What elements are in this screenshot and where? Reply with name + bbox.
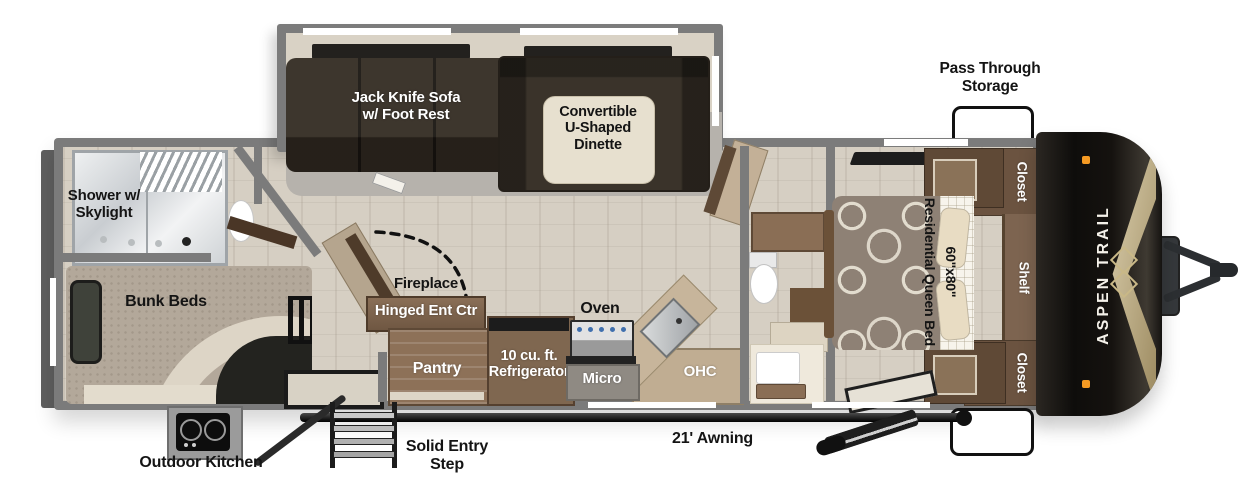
nightstand-bottom-glass [933,355,977,395]
awning-end-cap [956,410,972,426]
shelf-label: Shelf [1016,243,1031,313]
shower-label-line2: Skylight [44,205,164,222]
oven-base [566,356,636,364]
bunk-floor-strip [84,385,224,404]
entry-step-tread [333,451,395,458]
entry-step-line2: Step [387,456,507,474]
ent-center-label: Hinged Ent Ctr [366,303,486,320]
refrigerator-top [489,318,569,331]
dinette-label-line2: U-Shaped [543,120,653,136]
bath-overhead-cabinet [751,212,825,252]
window-pane-sofa [312,44,470,59]
bath-shelf-dark [790,288,826,326]
pantry-floor-strip [390,392,484,400]
refrigerator-label-line1: 10 cu. ft. [485,348,573,364]
pass-through-line2: Storage [915,78,1065,96]
vanity-sink [756,352,800,384]
bed-size-label: 60"x80" [942,222,958,322]
slide-side-window [712,56,719,126]
bed-label: Residential Queen Bed [921,197,937,347]
closet-bottom-label: Closet [1014,338,1029,408]
burner-dot [610,327,615,332]
oven-label: Oven [560,300,640,318]
bottom-wall-strip-bedroom [812,402,930,408]
entry-step-line1: Solid Entry [387,438,507,456]
awning-label: 21' Awning [650,430,775,448]
shower-drain-dot [128,239,135,246]
shower-drain [182,237,191,246]
fireplace-swing-arc [360,222,480,307]
shower-skylight-slats [140,152,222,192]
refrigerator-label-line2: Refrigerator [485,364,573,380]
outdoor-knob [192,443,196,447]
ohc-label: OHC [660,364,740,381]
bath-vanity [750,344,824,404]
outdoor-burner-icon [204,419,226,441]
awning-roller [300,413,968,422]
dinette-label: Convertible U-Shaped Dinette [543,104,653,153]
faucet-dot [676,318,682,324]
bottom-wall-strip-kitchen [588,402,716,408]
outdoor-knob [184,443,188,447]
wall-bath-left [740,146,749,404]
sofa-label-line2: w/ Foot Rest [330,107,482,124]
slide-window-strip-left [303,28,451,35]
nightstand-top-glass [933,159,977,201]
sofa-label-line1: Jack Knife Sofa [330,90,482,107]
outdoor-kitchen-box [167,406,243,460]
entry-step-tread [333,425,395,432]
vanity-soap-tray [756,384,806,399]
micro-label: Micro [566,371,638,388]
outdoor-cooktop [176,413,230,451]
closet-top-label: Closet [1014,147,1029,217]
dinette-label-line1: Convertible [543,104,653,120]
hitch-coupler [1210,263,1238,277]
shower-drain-dot [100,236,107,243]
outdoor-kitchen-label: Outdoor Kitchen [120,454,282,472]
pass-through-storage-label: Pass Through Storage [915,60,1065,95]
wall-below-shower [63,253,211,262]
burner-dot [588,327,593,332]
entry-step-tread [333,438,395,445]
entry-step-label: Solid Entry Step [387,438,507,474]
entry-step-tread [333,412,395,419]
burner-dot [621,327,626,332]
slide-window-strip-right [520,28,678,35]
burner-dot [577,327,582,332]
burner-dot [599,327,604,332]
shower-drain-dot [155,240,162,247]
bedroom-window-strip [884,139,968,146]
refrigerator-label: 10 cu. ft. Refrigerator [485,348,573,381]
bedroom-step-foot [814,434,847,458]
dinette-label-line3: Dinette [543,137,653,153]
rear-side-window [50,278,56,366]
pantry-label: Pantry [388,360,486,378]
bunk-beds-label: Bunk Beds [96,293,236,311]
bunk-ladder [288,296,312,344]
bath-toilet [750,264,778,304]
outdoor-burner-icon [180,419,202,441]
bed-footboard [824,210,834,338]
pass-through-line1: Pass Through [915,60,1065,78]
fireplace-label: Fireplace [382,276,470,293]
bunk-beds [66,266,312,404]
wall-entry-right [378,352,387,402]
shower-label-line1: Shower w/ [44,188,164,205]
sofa-label: Jack Knife Sofa w/ Foot Rest [330,90,482,124]
marker-light [1082,156,1090,164]
brand-logo: ASPEN TRAIL [1095,185,1113,365]
floorplan-diagram: Jack Knife Sofa w/ Foot Rest Convertible… [0,0,1250,500]
marker-light [1082,380,1090,388]
shower-label: Shower w/ Skylight [44,188,164,222]
